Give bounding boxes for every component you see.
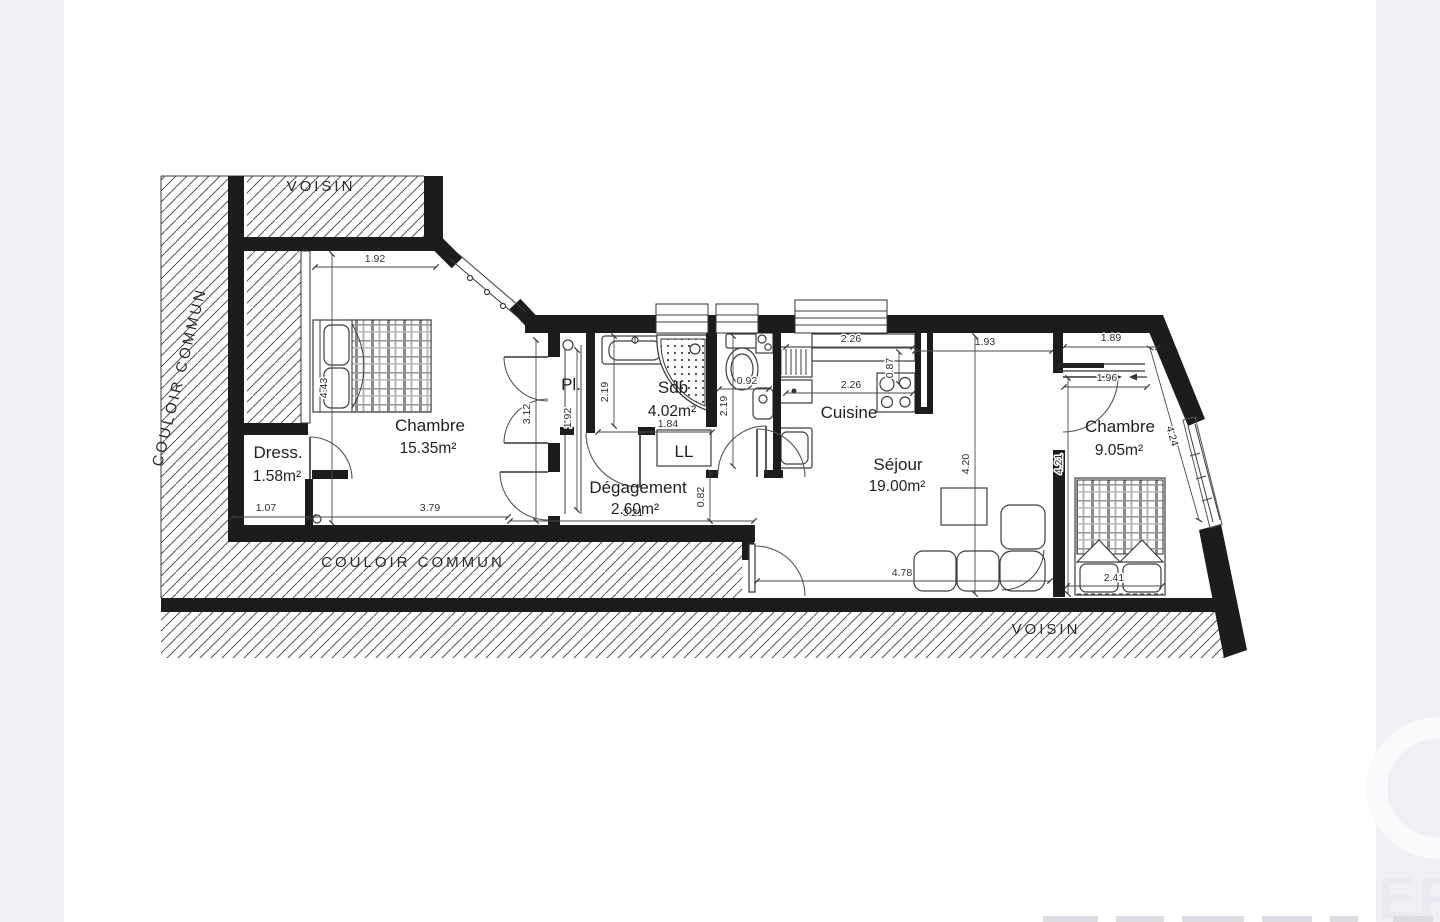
zone-voisin-bottom: VOISIN [1012, 621, 1081, 638]
room-label-cuisine: Cuisine [821, 403, 878, 422]
floor-plan-page: ER [0, 0, 1440, 922]
closet-doors-chambre1 [504, 357, 548, 443]
shaft-hatch [247, 251, 301, 423]
dim: 1.96 [1097, 372, 1118, 384]
watermark-text: ER [1378, 866, 1440, 922]
dim: 2.41 [1104, 572, 1125, 584]
pillow [1123, 564, 1161, 592]
symbol-circle [563, 340, 573, 350]
floor-plan: ER [0, 0, 1440, 922]
dim: 2.26 [841, 333, 862, 345]
bed-chambre1 [313, 320, 431, 412]
watermark-fragments [1043, 916, 1433, 922]
room-label-degagement: Dégagement [589, 478, 687, 497]
entry-door [749, 544, 805, 596]
dim: 1.89 [1101, 332, 1122, 344]
hand-basin [753, 388, 773, 419]
room-label-chambre2: Chambre [1085, 417, 1155, 436]
dim: 1.07 [256, 502, 277, 514]
zone-couloir-bottom: COULOIR COMMUN [321, 554, 505, 571]
room-label-dressing: Dress. [253, 443, 302, 462]
door-chambre1 [500, 472, 548, 520]
dim: 4.20 [960, 454, 972, 475]
symbol-circle [313, 515, 321, 523]
stove [877, 373, 915, 412]
dim: 0.87 [884, 358, 896, 379]
room-area-chambre2: 9.05m² [1095, 442, 1143, 459]
room-area-sejour: 19.00m² [869, 478, 926, 495]
dim: 1.92 [562, 408, 574, 429]
dim: 0.92 [737, 375, 758, 387]
dim: 4.78 [892, 567, 913, 579]
fridge [777, 347, 812, 377]
kitchen-units [777, 334, 915, 468]
coffee-table [941, 488, 987, 525]
dim: 4.21 [1053, 454, 1065, 475]
corner-basin [756, 333, 773, 353]
window-sdb [656, 304, 708, 333]
room-label-placard: Pl. [561, 375, 581, 394]
dim: 1.92 [365, 253, 386, 265]
pillow [324, 325, 349, 365]
balcony-edge [1183, 417, 1222, 528]
blanket [1077, 480, 1163, 554]
room-area-chambre1: 15.35m² [400, 440, 457, 457]
dim: 2.19 [599, 382, 611, 403]
left-margin [0, 0, 64, 922]
dim: 2.26 [841, 379, 862, 391]
watermark: ER [1043, 728, 1440, 922]
room-label-sdb: Sdb [658, 378, 688, 397]
door-wc [718, 426, 766, 474]
room-area-sdb: 4.02m² [648, 403, 696, 420]
dim: 1.93 [975, 336, 996, 348]
room-label-chambre1: Chambre [395, 416, 465, 435]
window-slant [1183, 417, 1222, 528]
shower-drain [690, 344, 700, 354]
window-cuisine [795, 300, 887, 333]
slant-wall-top [1142, 315, 1205, 426]
window-wc [716, 304, 758, 333]
dim: 4.24 [1163, 425, 1180, 448]
dim: 2.19 [718, 396, 730, 417]
room-area-degagement: 2.60m² [611, 501, 659, 518]
room-area-dressing: 1.58m² [253, 468, 301, 485]
shower [657, 335, 709, 411]
dim: 0.82 [695, 487, 707, 508]
dim: 4.43 [318, 378, 330, 399]
dim: 3.12 [521, 404, 533, 425]
room-label-ll: LL [675, 442, 694, 461]
dim: 3.79 [420, 502, 441, 514]
room-label-sejour: Séjour [873, 455, 922, 474]
zone-voisin-top: VOISIN [287, 178, 356, 195]
